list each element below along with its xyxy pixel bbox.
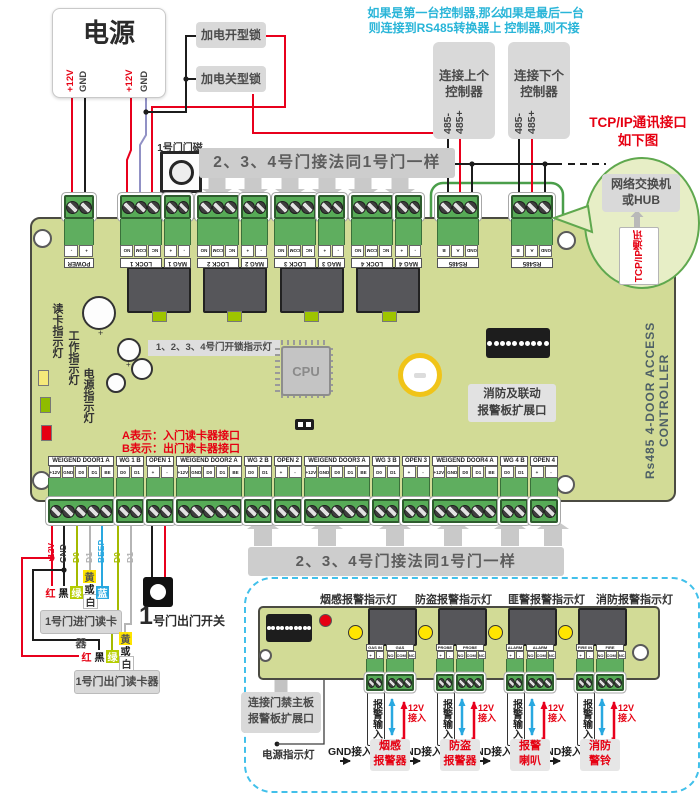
hub-arrow <box>631 210 644 228</box>
wiring-diagram: 电源 +12V GND +12V GND 加电开型锁 加电关型锁 1号门门磁 2… <box>0 0 700 800</box>
hub-box: 网络交换机 或HUB <box>602 174 680 212</box>
tcpip-port-label: TCP/IP通讯 <box>632 230 647 282</box>
bubble-tail <box>554 206 592 232</box>
bubble-tail-layer <box>0 0 700 800</box>
tcpip-port-slot: TCP/IP通讯 <box>619 227 659 285</box>
